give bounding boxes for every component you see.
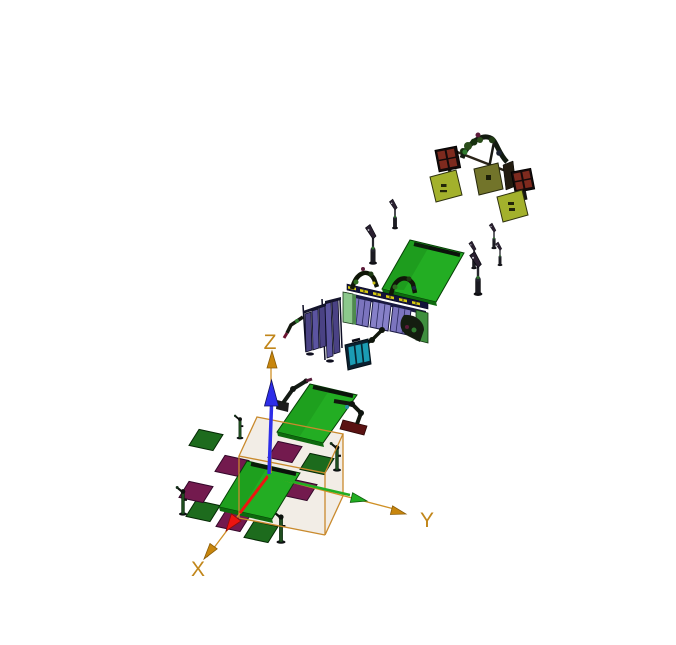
axis-y-green-arrowhead [350,493,367,503]
pole-robot [234,415,243,440]
olive-panel-right[interactable] [497,190,528,222]
olive-panel-left[interactable] [430,170,462,202]
plate-green [189,429,223,450]
teal-battery-box[interactable] [345,339,371,370]
upper-green-table[interactable] [276,379,367,448]
axis-z-label: Z [264,331,277,354]
axis-x-label: X [191,558,205,581]
olive-panel-center[interactable] [474,163,503,195]
small-robot [389,199,398,229]
axis-y-label: Y [420,509,434,532]
station-robot-left [352,267,377,289]
rack-robot-arm [287,317,303,333]
small-robot [496,242,503,266]
small-robot [470,252,483,296]
axis-z-blue-arrowhead [265,380,279,406]
axis-z-blue-shaft [269,406,272,474]
plate-green [186,500,220,521]
3d-viewport[interactable]: X Y Z [0,0,676,645]
scene-canvas[interactable]: X Y Z [0,0,676,645]
station-support-left [343,292,356,325]
small-robot [489,223,496,249]
top-robot-cluster[interactable] [430,133,536,223]
axis-y-orange-arrowhead [390,506,406,515]
purple-slat-rack[interactable] [284,297,342,363]
small-robot [366,225,378,265]
